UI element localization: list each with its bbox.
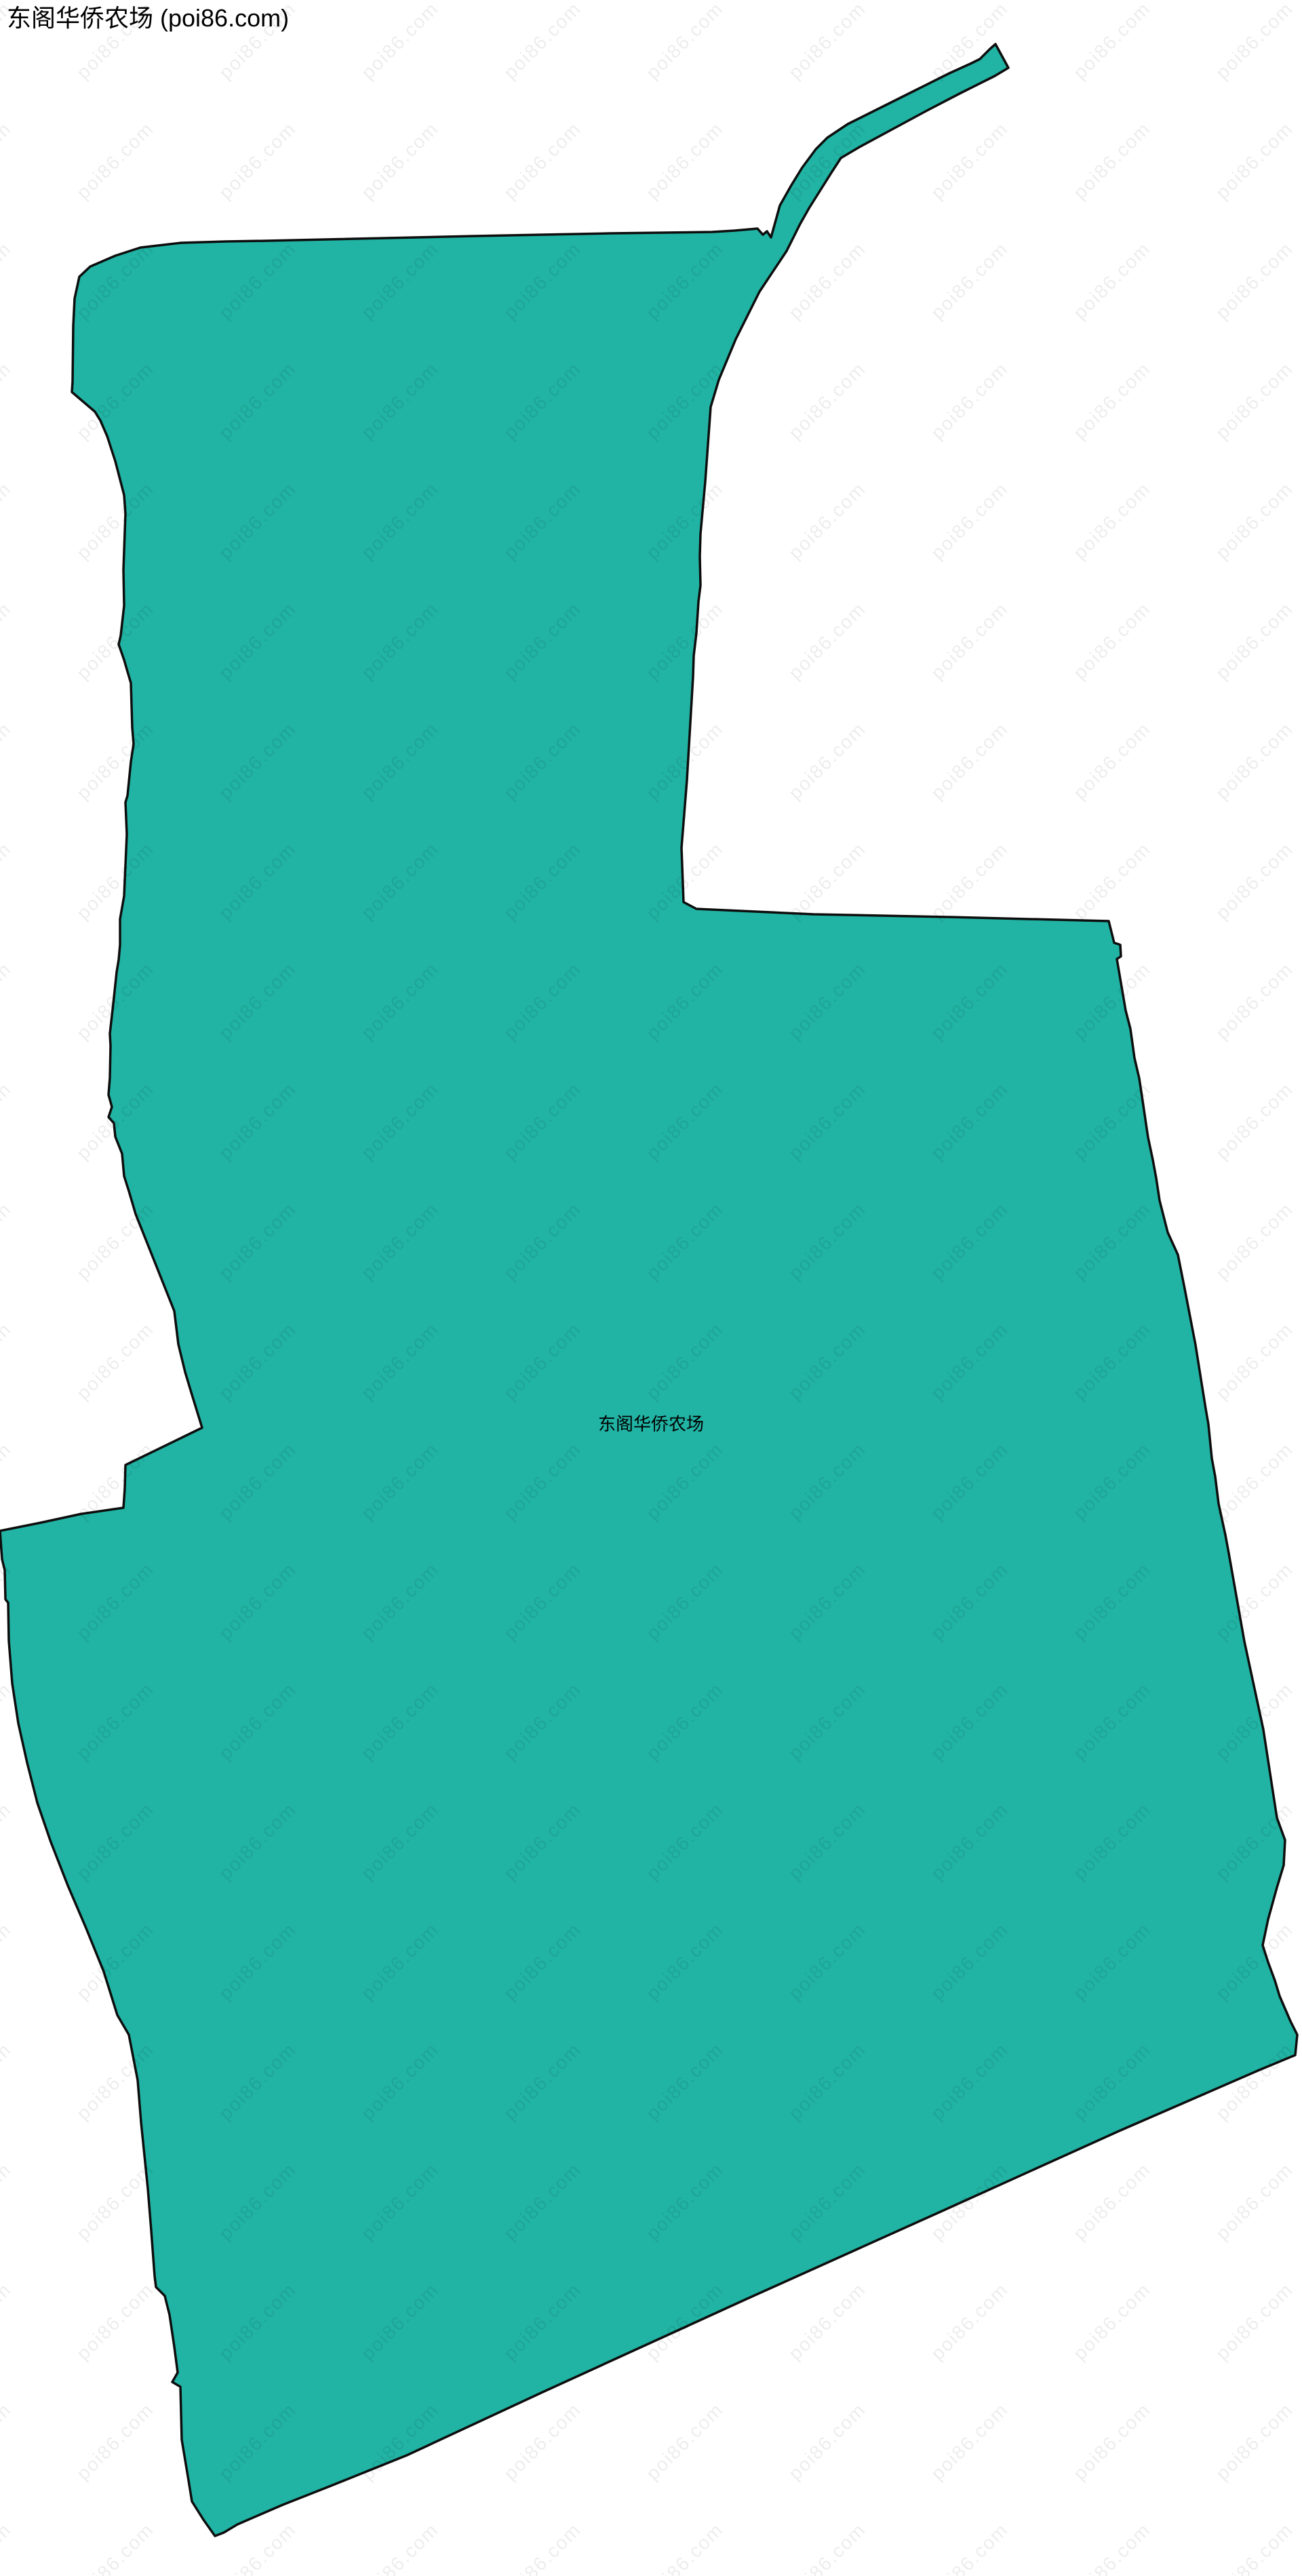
page-title: 东阁华侨农场 (poi86.com)	[7, 4, 289, 32]
region-polygon-shape	[0, 44, 1297, 2536]
region-label: 东阁华侨农场	[598, 1411, 704, 1436]
map-canvas: poi86.compoi86.compoi86.compoi86.compoi8…	[0, 0, 1302, 2576]
region-map	[0, 0, 1302, 2576]
